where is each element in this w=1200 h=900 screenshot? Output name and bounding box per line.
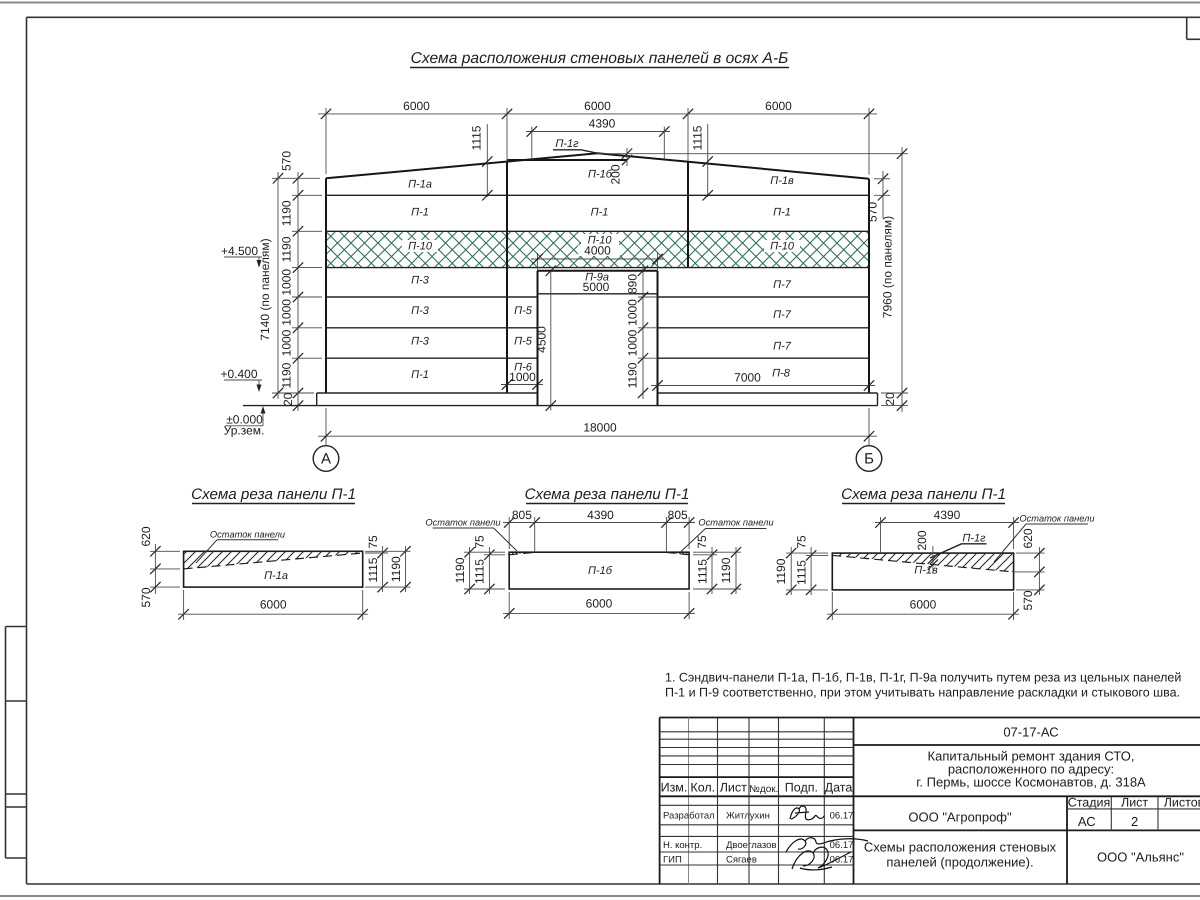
svg-text:4500: 4500 (535, 326, 549, 353)
svg-text:Остаток панели: Остаток панели (698, 518, 773, 528)
svg-text:П-1а: П-1а (264, 570, 288, 582)
svg-text:ГИП: ГИП (663, 855, 682, 866)
svg-text:П-7: П-7 (773, 341, 792, 353)
svg-text:5000: 5000 (583, 280, 610, 294)
svg-text:+0.400: +0.400 (220, 367, 257, 381)
svg-text:АС: АС (1078, 814, 1096, 829)
svg-text:Остаток панели: Остаток панели (425, 518, 500, 528)
svg-text:570: 570 (280, 151, 294, 171)
svg-text:6000: 6000 (765, 99, 792, 113)
svg-text:1000: 1000 (626, 329, 640, 356)
svg-text:1190: 1190 (626, 362, 640, 388)
svg-text:07-17-АС: 07-17-АС (1003, 725, 1058, 740)
svg-text:75: 75 (366, 535, 380, 549)
svg-text:1115: 1115 (794, 560, 808, 585)
svg-text:Остаток панели: Остаток панели (1019, 514, 1094, 524)
svg-text:1190: 1190 (280, 200, 294, 226)
svg-text:П-7: П-7 (773, 309, 792, 321)
svg-text:Кол.: Кол. (690, 781, 715, 795)
svg-text:П-1в: П-1в (914, 565, 938, 577)
svg-text:6000: 6000 (403, 99, 430, 113)
svg-text:7140 (по панелям): 7140 (по панелям) (258, 238, 272, 340)
svg-text:4390: 4390 (589, 117, 616, 131)
svg-text:2: 2 (1131, 814, 1138, 829)
svg-text:1190: 1190 (389, 556, 403, 582)
svg-text:Схема реза панели П-1: Схема реза панели П-1 (191, 486, 356, 503)
svg-text:6000: 6000 (260, 598, 287, 612)
svg-text:П-10: П-10 (770, 241, 795, 253)
svg-text:570: 570 (139, 587, 153, 607)
svg-text:805: 805 (512, 508, 532, 522)
svg-text:6000: 6000 (910, 598, 937, 612)
svg-text:Сягаев: Сягаев (726, 855, 757, 866)
svg-text:П-1г: П-1г (555, 138, 579, 150)
svg-text:П-3: П-3 (411, 275, 430, 287)
svg-text:1000: 1000 (509, 370, 536, 384)
svg-text:1190: 1190 (719, 557, 733, 583)
svg-text:75: 75 (473, 535, 487, 549)
svg-text:20: 20 (281, 392, 295, 406)
svg-text:06.17: 06.17 (830, 811, 854, 822)
svg-text:Остаток панели: Остаток панели (210, 530, 285, 540)
svg-text:П-1: П-1 (773, 207, 791, 219)
svg-text:1000: 1000 (626, 299, 640, 326)
svg-text:1115: 1115 (473, 559, 487, 584)
svg-text:Двоеглазов: Двоеглазов (726, 840, 777, 851)
svg-text:Лист: Лист (720, 781, 747, 795)
svg-text:75: 75 (794, 535, 808, 549)
svg-text:200: 200 (609, 164, 623, 184)
svg-text:ООО "Агропроф": ООО "Агропроф" (908, 810, 1012, 825)
svg-text:Схема реза панели П-1: Схема реза панели П-1 (525, 486, 690, 503)
svg-text:1000: 1000 (280, 299, 294, 326)
svg-text:П-1: П-1 (411, 369, 429, 381)
svg-text:Листов: Листов (1164, 795, 1200, 809)
svg-text:620: 620 (139, 526, 153, 546)
svg-text:Лист: Лист (1121, 795, 1148, 809)
svg-text:1115: 1115 (696, 559, 710, 584)
svg-text:П-1г: П-1г (962, 533, 986, 545)
svg-text:1190: 1190 (280, 236, 294, 262)
svg-text:П-5: П-5 (514, 305, 533, 317)
svg-text:№док.: №док. (749, 784, 778, 795)
svg-text:Схема расположения стеновых па: Схема расположения стеновых панелей в ос… (411, 50, 789, 67)
svg-text:4390: 4390 (934, 508, 961, 522)
svg-text:ООО "Альянс": ООО "Альянс" (1097, 850, 1184, 865)
svg-text:6000: 6000 (586, 597, 613, 611)
svg-text:панелей (продолжение).: панелей (продолжение). (886, 855, 1033, 870)
svg-text:1115: 1115 (691, 125, 705, 150)
svg-text:Б: Б (864, 451, 874, 468)
svg-text:Схемы расположения стеновых: Схемы расположения стеновых (864, 840, 1057, 855)
svg-text:1190: 1190 (280, 362, 294, 388)
svg-text:Стадия: Стадия (1068, 795, 1111, 809)
svg-text:П-1 и П-9 соответственно, при: П-1 и П-9 соответственно, при этом учиты… (665, 686, 1180, 700)
svg-text:Ур.зем.: Ур.зем. (224, 424, 265, 438)
svg-text:570: 570 (1021, 590, 1035, 610)
svg-text:П-1б: П-1б (588, 565, 613, 577)
svg-text:1190: 1190 (453, 557, 467, 583)
svg-text:620: 620 (1021, 528, 1035, 548)
svg-text:890: 890 (626, 274, 640, 294)
svg-text:+4.500: +4.500 (221, 244, 258, 258)
svg-text:П-1: П-1 (591, 207, 609, 219)
svg-text:200: 200 (915, 530, 929, 550)
svg-text:Н. контр.: Н. контр. (663, 840, 702, 851)
svg-text:А: А (321, 451, 331, 468)
svg-text:6000: 6000 (584, 99, 611, 113)
svg-text:П-1а: П-1а (408, 179, 432, 191)
svg-text:570: 570 (866, 202, 880, 222)
svg-text:П-3: П-3 (411, 305, 430, 317)
svg-text:П-8: П-8 (772, 368, 791, 380)
svg-text:20: 20 (883, 392, 897, 406)
svg-text:7000: 7000 (734, 371, 761, 385)
svg-text:П-7: П-7 (773, 279, 792, 291)
svg-text:Разработал: Разработал (663, 811, 715, 822)
svg-text:1000: 1000 (280, 329, 294, 356)
svg-text:4390: 4390 (587, 508, 614, 522)
svg-text:06.17: 06.17 (830, 855, 854, 866)
svg-text:1190: 1190 (774, 558, 788, 584)
svg-text:7960 (по панелям): 7960 (по панелям) (881, 216, 895, 318)
svg-text:П-10: П-10 (408, 241, 433, 253)
svg-text:Дата: Дата (825, 781, 853, 795)
svg-text:Изм.: Изм. (661, 781, 688, 795)
svg-text:805: 805 (668, 508, 688, 522)
svg-text:П-5: П-5 (514, 336, 533, 348)
svg-text:4000: 4000 (584, 244, 611, 258)
svg-text:1115: 1115 (470, 125, 484, 150)
svg-text:1000: 1000 (280, 269, 294, 296)
svg-text:Подп.: Подп. (785, 781, 818, 795)
svg-text:Схема реза панели П-1: Схема реза панели П-1 (841, 486, 1006, 503)
svg-text:П-1: П-1 (411, 207, 429, 219)
svg-text:06.17: 06.17 (830, 840, 854, 851)
svg-text:г. Пермь, шоссе Космонавтов, д: г. Пермь, шоссе Космонавтов, д. 318А (916, 775, 1146, 790)
svg-text:1115: 1115 (366, 557, 380, 582)
svg-text:П-3: П-3 (411, 336, 430, 348)
svg-text:Житлухин: Житлухин (726, 811, 770, 822)
svg-text:1. Сэндвич-панели П-1а, П-1б,: 1. Сэндвич-панели П-1а, П-1б, П-1в, П-1г… (665, 671, 1181, 685)
svg-text:18000: 18000 (583, 421, 617, 435)
svg-text:П-1в: П-1в (770, 175, 794, 187)
